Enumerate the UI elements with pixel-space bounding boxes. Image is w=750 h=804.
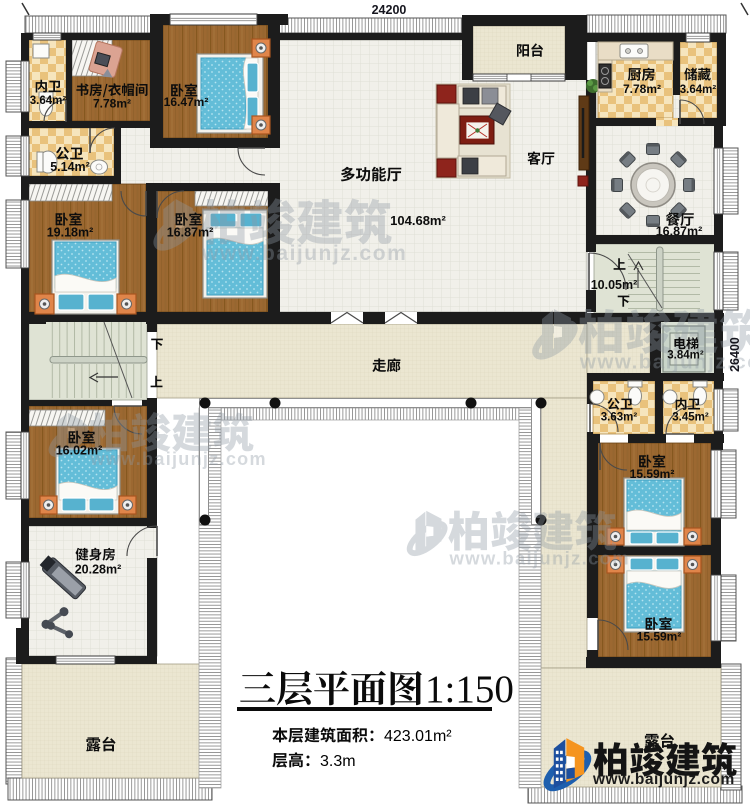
svg-text:16.87m²: 16.87m² bbox=[167, 225, 214, 239]
svg-text:www.baijunjz.com: www.baijunjz.com bbox=[592, 771, 735, 788]
svg-text:www.baijunjz.com: www.baijunjz.com bbox=[201, 242, 407, 265]
svg-text:24200: 24200 bbox=[372, 3, 407, 17]
svg-text:16.02m²: 16.02m² bbox=[56, 443, 103, 457]
svg-text:3.84m²: 3.84m² bbox=[667, 350, 704, 362]
svg-text:7.78m²: 7.78m² bbox=[623, 82, 661, 96]
svg-text:3.64m²: 3.64m² bbox=[30, 95, 67, 107]
svg-text:16.87m²: 16.87m² bbox=[656, 224, 703, 238]
svg-text:www.baijunjz.com: www.baijunjz.com bbox=[89, 449, 266, 469]
svg-text:15.59m²: 15.59m² bbox=[630, 467, 675, 481]
svg-text:104.68m²: 104.68m² bbox=[390, 213, 446, 228]
svg-text:3.45m²: 3.45m² bbox=[672, 412, 709, 424]
svg-text:5.14m²: 5.14m² bbox=[50, 160, 90, 174]
svg-text:3.64m²: 3.64m² bbox=[680, 84, 717, 96]
svg-text:26400: 26400 bbox=[728, 337, 742, 372]
svg-text:3.63m²: 3.63m² bbox=[601, 412, 638, 424]
svg-text:3.3m: 3.3m bbox=[320, 753, 356, 770]
svg-text:10.05m²: 10.05m² bbox=[591, 278, 638, 292]
svg-text:www.baijunjz.com: www.baijunjz.com bbox=[579, 351, 750, 374]
svg-text:19.18m²: 19.18m² bbox=[47, 225, 94, 239]
svg-text:16.47m²: 16.47m² bbox=[164, 95, 209, 109]
svg-text:7.78m²: 7.78m² bbox=[93, 97, 131, 111]
svg-text:423.01m²: 423.01m² bbox=[384, 728, 452, 745]
svg-text:1:150: 1:150 bbox=[425, 668, 514, 711]
svg-text:15.59m²: 15.59m² bbox=[637, 630, 682, 644]
svg-text:www.baijunjz.com: www.baijunjz.com bbox=[449, 547, 631, 568]
svg-text:20.28m²: 20.28m² bbox=[75, 562, 122, 576]
